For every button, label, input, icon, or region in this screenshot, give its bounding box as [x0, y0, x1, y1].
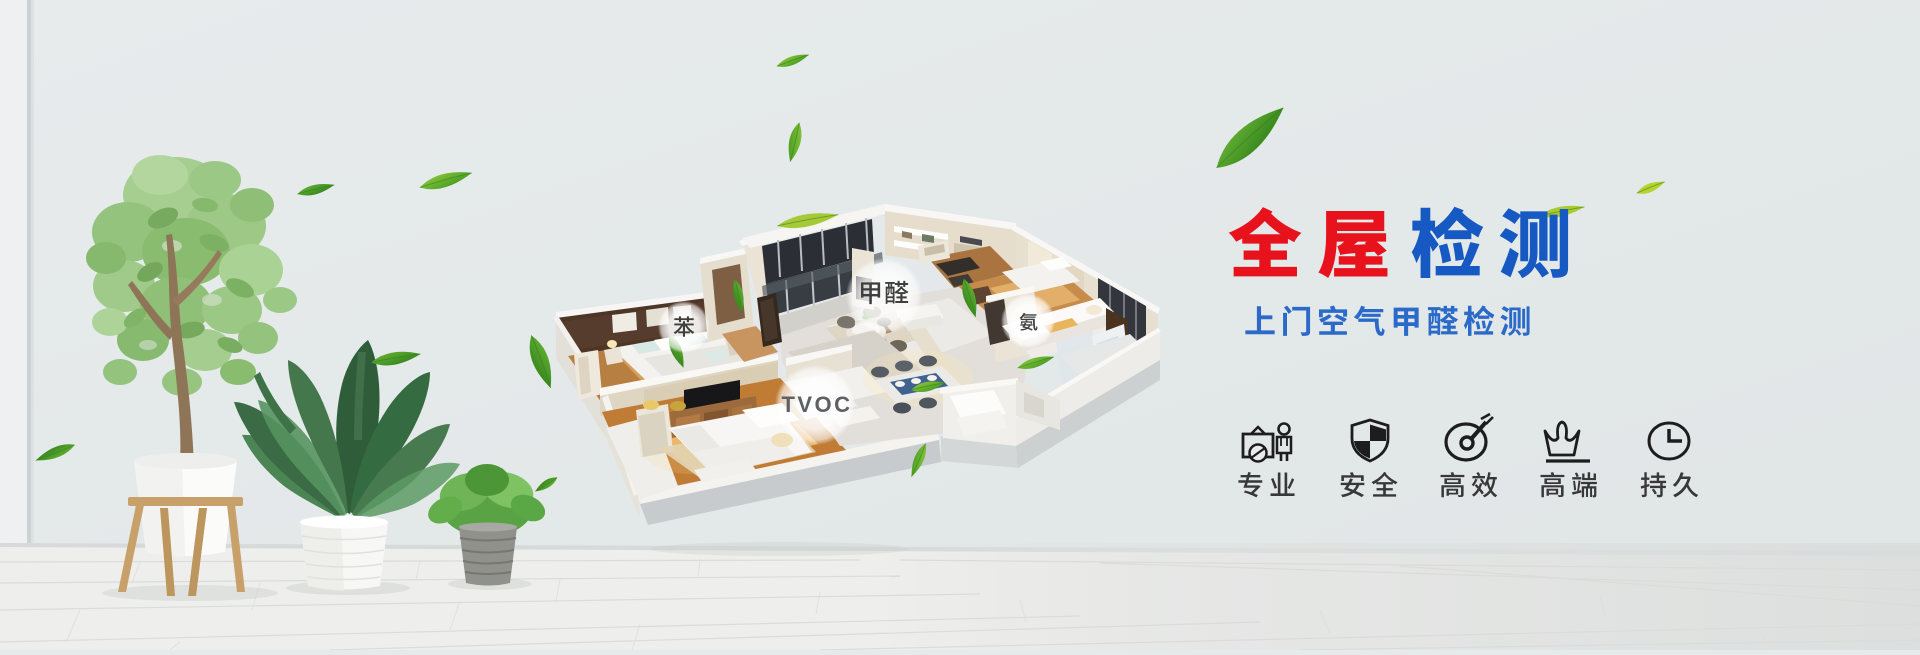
svg-text:TVOC: TVOC	[781, 392, 852, 417]
